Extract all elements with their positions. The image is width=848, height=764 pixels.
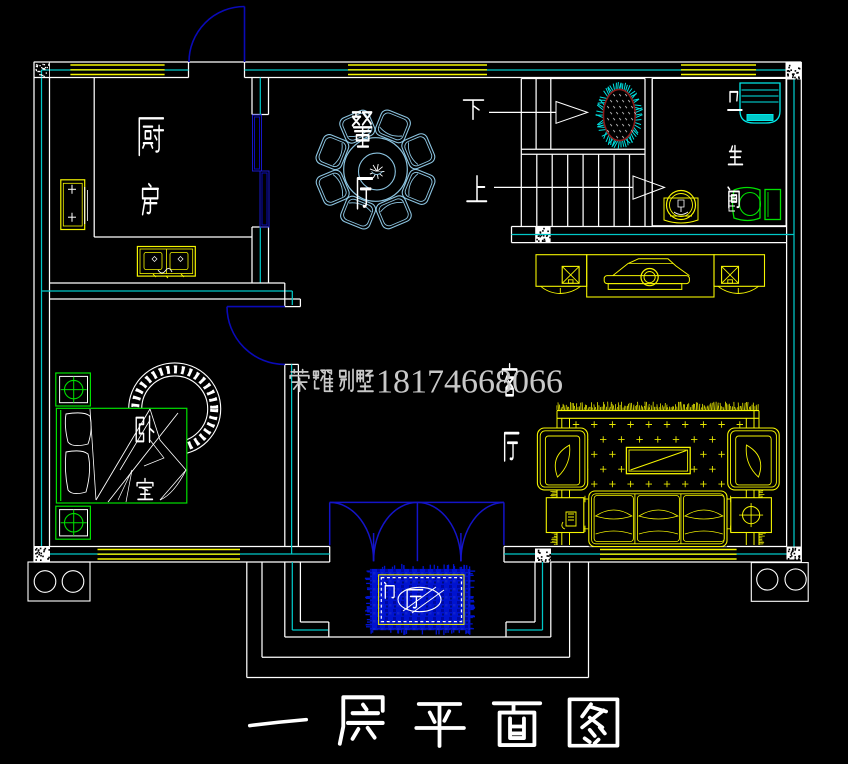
svg-text:18174668066: 18174668066 [376, 364, 563, 401]
